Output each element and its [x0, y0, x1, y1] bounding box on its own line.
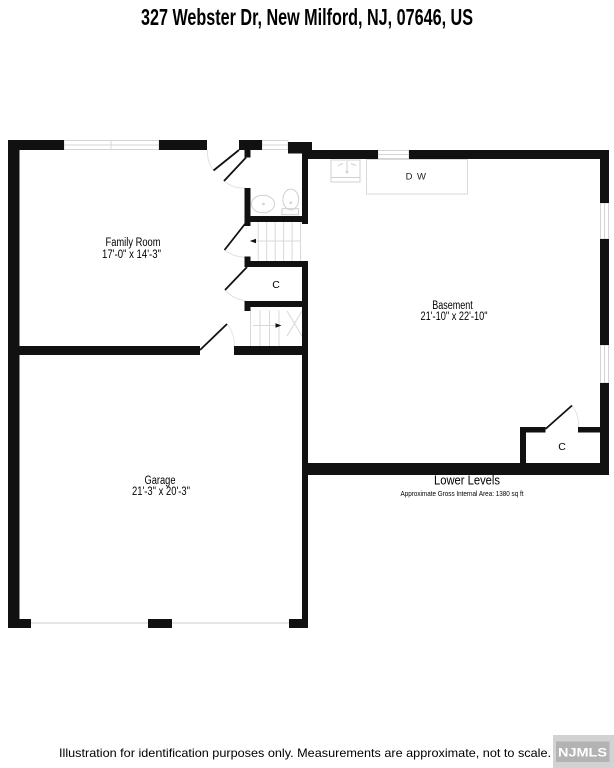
svg-text:C: C	[272, 279, 280, 291]
svg-text:Lower Levels: Lower Levels	[434, 474, 500, 488]
svg-text:D: D	[406, 172, 413, 183]
svg-text:21'-10" x 22'-10": 21'-10" x 22'-10"	[421, 311, 488, 323]
svg-text:17'-0" x 14'-3": 17'-0" x 14'-3"	[102, 249, 161, 261]
svg-text:Approximate Gross Internal Are: Approximate Gross Internal Area: 1380 sq…	[401, 489, 525, 498]
svg-text:Family Room: Family Room	[106, 237, 161, 249]
svg-text:W: W	[417, 172, 426, 183]
svg-text:327 Webster Dr, New Milford, N: 327 Webster Dr, New Milford, NJ, 07646, …	[141, 4, 473, 30]
svg-text:21'-3" x 20'-3": 21'-3" x 20'-3"	[132, 486, 190, 498]
svg-text:Illustration for identificatio: Illustration for identification purposes…	[59, 746, 551, 760]
svg-text:C: C	[558, 441, 566, 453]
svg-text:NJMLS: NJMLS	[558, 746, 607, 760]
